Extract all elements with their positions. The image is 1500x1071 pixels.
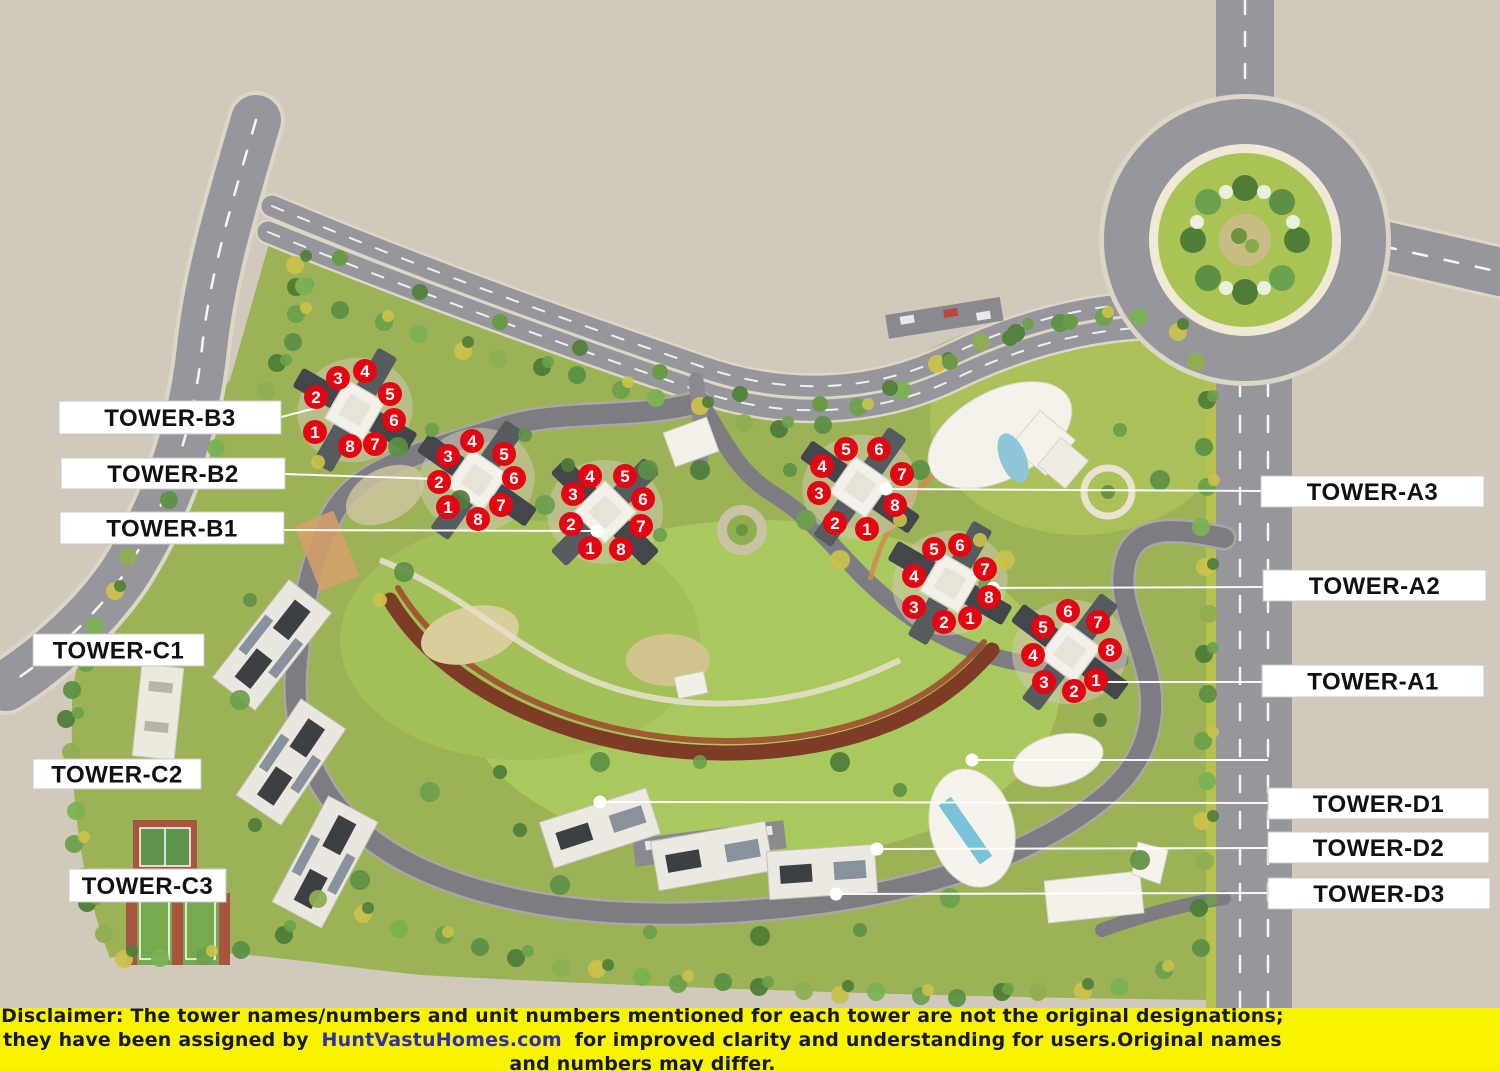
unit-marker-number: 7 <box>897 465 906 484</box>
unit-marker-a2-4: 4 <box>902 564 926 588</box>
unit-marker-a1-2: 2 <box>1062 679 1086 703</box>
unit-marker-number: 7 <box>980 560 989 579</box>
unit-marker-number: 1 <box>1091 671 1100 690</box>
unit-marker-b2-1: 1 <box>436 495 460 519</box>
unit-marker-a1-7: 7 <box>1086 610 1110 634</box>
tower-label-text: TOWER-D3 <box>1313 881 1445 908</box>
unit-marker-number: 7 <box>370 435 379 454</box>
unit-marker-a3-6: 6 <box>867 437 891 461</box>
unit-marker-number: 5 <box>620 467 629 486</box>
tower-label-d3: TOWER-D3 <box>1268 878 1490 909</box>
unit-marker-a2-7: 7 <box>973 557 997 581</box>
tower-label-a3: TOWER-A3 <box>1261 476 1484 507</box>
unit-marker-number: 3 <box>1039 673 1048 692</box>
unit-marker-b1-5: 5 <box>613 464 637 488</box>
unit-marker-a3-2: 2 <box>823 511 847 535</box>
unit-marker-number: 8 <box>473 510 482 529</box>
unit-marker-number: 3 <box>814 484 823 503</box>
unit-marker-b3-3: 3 <box>326 366 350 390</box>
tower-building-d3 <box>766 844 877 899</box>
unit-marker-a1-8: 8 <box>1098 638 1122 662</box>
tower-label-b1: TOWER-B1 <box>60 512 284 544</box>
unit-marker-number: 1 <box>862 520 871 539</box>
tower-label-text: TOWER-B3 <box>104 405 236 432</box>
unit-marker-a1-5: 5 <box>1031 615 1055 639</box>
leader-dot-extra-1 <box>966 754 979 767</box>
leader-line-a2 <box>993 587 1263 588</box>
unit-marker-b3-2: 2 <box>304 385 328 409</box>
unit-marker-number: 4 <box>1028 646 1038 665</box>
tower-label-c1: TOWER-C1 <box>33 634 204 666</box>
unit-marker-a3-5: 5 <box>834 437 858 461</box>
unit-marker-b3-5: 5 <box>378 382 402 406</box>
unit-marker-number: 5 <box>499 445 508 464</box>
unit-marker-number: 3 <box>443 447 452 466</box>
leader-line-d3 <box>836 893 1268 894</box>
leader-dot-d1 <box>594 796 607 809</box>
unit-marker-a2-1: 1 <box>958 606 982 630</box>
unit-marker-number: 4 <box>909 567 919 586</box>
unit-marker-number: 4 <box>467 432 477 451</box>
tower-label-text: TOWER-A3 <box>1307 479 1439 506</box>
huntvastuhomes-link: HuntVastuHomes.com <box>322 1029 562 1051</box>
unit-marker-a3-7: 7 <box>890 462 914 486</box>
disclaimer-line2: they have been assigned by HuntVastuHome… <box>0 1028 1285 1071</box>
unit-marker-number: 2 <box>939 613 948 632</box>
unit-marker-number: 6 <box>509 469 518 488</box>
unit-marker-number: 5 <box>385 385 394 404</box>
unit-marker-number: 1 <box>585 539 594 558</box>
roundabout <box>1099 94 1391 386</box>
unit-marker-number: 7 <box>496 496 505 515</box>
unit-marker-b2-2: 2 <box>427 470 451 494</box>
unit-marker-number: 5 <box>1038 618 1047 637</box>
unit-marker-number: 1 <box>443 498 452 517</box>
unit-marker-number: 5 <box>929 540 938 559</box>
tower-label-c3: TOWER-C3 <box>69 869 226 902</box>
unit-marker-number: 5 <box>841 440 850 459</box>
disclaimer-line1: Disclaimer: The tower names/numbers and … <box>0 1004 1285 1028</box>
disclaimer-text2b: for improved clarity and understanding f… <box>509 1029 1282 1071</box>
unit-marker-b2-6: 6 <box>502 466 526 490</box>
unit-marker-number: 7 <box>1093 613 1102 632</box>
unit-marker-number: 3 <box>568 485 577 504</box>
tower-label-b3: TOWER-B3 <box>59 401 281 434</box>
tower-label-text: TOWER-D2 <box>1313 835 1445 862</box>
leader-dot-b1 <box>591 525 604 538</box>
unit-marker-number: 7 <box>636 517 645 536</box>
unit-marker-number: 4 <box>360 362 370 381</box>
disclaimer-text2a: they have been assigned by <box>3 1029 315 1051</box>
unit-marker-number: 8 <box>1105 641 1114 660</box>
leader-line-b1 <box>284 530 596 531</box>
unit-marker-number: 6 <box>874 440 883 459</box>
unit-marker-a3-4: 4 <box>810 454 834 478</box>
disclaimer-text1: The tower names/numbers and unit numbers… <box>124 1005 1284 1027</box>
unit-marker-b2-4: 4 <box>460 429 484 453</box>
unit-marker-b1-7: 7 <box>629 514 653 538</box>
unit-marker-number: 6 <box>389 411 398 430</box>
tower-label-d1: TOWER-D1 <box>1268 788 1489 819</box>
unit-marker-a3-3: 3 <box>807 481 831 505</box>
unit-marker-a2-6: 6 <box>948 533 972 557</box>
unit-marker-a3-1: 1 <box>855 517 879 541</box>
unit-marker-number: 8 <box>890 496 899 515</box>
unit-marker-number: 8 <box>984 588 993 607</box>
unit-marker-number: 8 <box>345 437 354 456</box>
unit-marker-a1-6: 6 <box>1056 599 1080 623</box>
unit-marker-number: 1 <box>310 423 319 442</box>
unit-marker-b3-8: 8 <box>338 434 362 458</box>
unit-marker-b1-4: 4 <box>578 464 602 488</box>
tower-label-text: TOWER-D1 <box>1313 791 1445 818</box>
tower-label-text: TOWER-B2 <box>107 461 239 488</box>
disclaimer-bar: Disclaimer: The tower names/numbers and … <box>0 1008 1500 1071</box>
tower-label-b2: TOWER-B2 <box>61 458 285 489</box>
tower-label-text: TOWER-A2 <box>1309 573 1441 600</box>
tower-label-d2: TOWER-D2 <box>1268 832 1489 863</box>
unit-marker-b1-3: 3 <box>561 482 585 506</box>
unit-marker-number: 3 <box>333 369 342 388</box>
unit-marker-b2-5: 5 <box>492 442 516 466</box>
unit-marker-number: 4 <box>585 467 595 486</box>
unit-marker-b3-4: 4 <box>353 359 377 383</box>
unit-marker-number: 2 <box>311 388 320 407</box>
unit-marker-a1-4: 4 <box>1021 643 1045 667</box>
unit-marker-number: 1 <box>965 609 974 628</box>
unit-marker-a2-2: 2 <box>932 610 956 634</box>
building-west-slab <box>132 664 183 760</box>
tower-label-a2: TOWER-A2 <box>1263 570 1486 601</box>
tower-label-text: TOWER-C3 <box>82 873 214 900</box>
unit-marker-b3-6: 6 <box>382 408 406 432</box>
leader-line-d1 <box>600 802 1268 803</box>
unit-marker-b1-2: 2 <box>559 512 583 536</box>
unit-marker-number: 6 <box>638 490 647 509</box>
unit-marker-number: 2 <box>1069 682 1078 701</box>
unit-marker-number: 8 <box>616 540 625 559</box>
tower-label-text: TOWER-C1 <box>53 638 185 665</box>
unit-marker-b1-6: 6 <box>631 487 655 511</box>
tower-label-text: TOWER-B1 <box>106 516 238 543</box>
leader-dot-d3 <box>830 888 843 901</box>
unit-marker-a2-5: 5 <box>922 537 946 561</box>
leader-dot-d2 <box>871 843 884 856</box>
tower-label-text: TOWER-C2 <box>51 762 183 789</box>
unit-marker-number: 3 <box>909 598 918 617</box>
unit-marker-number: 2 <box>566 515 575 534</box>
unit-marker-b1-8: 8 <box>609 537 633 561</box>
unit-marker-b2-8: 8 <box>466 507 490 531</box>
unit-marker-b3-1: 1 <box>303 420 327 444</box>
tower-label-c2: TOWER-C2 <box>33 759 201 789</box>
unit-marker-b2-3: 3 <box>436 444 460 468</box>
unit-marker-number: 2 <box>434 473 443 492</box>
unit-marker-number: 2 <box>830 514 839 533</box>
unit-marker-number: 6 <box>955 536 964 555</box>
leader-line-d2 <box>877 848 1268 849</box>
unit-marker-number: 4 <box>817 457 827 476</box>
unit-marker-a2-8: 8 <box>977 585 1001 609</box>
leader-dot-a3 <box>880 483 893 496</box>
unit-marker-a1-1: 1 <box>1084 668 1108 692</box>
unit-marker-a2-3: 3 <box>902 595 926 619</box>
site-plan-screenshot: 1234567812345678123456781234567812345678… <box>0 0 1500 1071</box>
disclaimer-label: Disclaimer: <box>1 1005 124 1027</box>
unit-marker-a3-8: 8 <box>883 493 907 517</box>
master-plan-map: 1234567812345678123456781234567812345678… <box>0 0 1500 1008</box>
tower-label-text: TOWER-A1 <box>1307 669 1439 696</box>
unit-marker-b1-1: 1 <box>578 536 602 560</box>
unit-marker-b3-7: 7 <box>363 432 387 456</box>
tower-label-a1: TOWER-A1 <box>1262 665 1484 697</box>
unit-marker-b2-7: 7 <box>489 493 513 517</box>
unit-marker-number: 6 <box>1063 602 1072 621</box>
unit-marker-a1-3: 3 <box>1032 670 1056 694</box>
